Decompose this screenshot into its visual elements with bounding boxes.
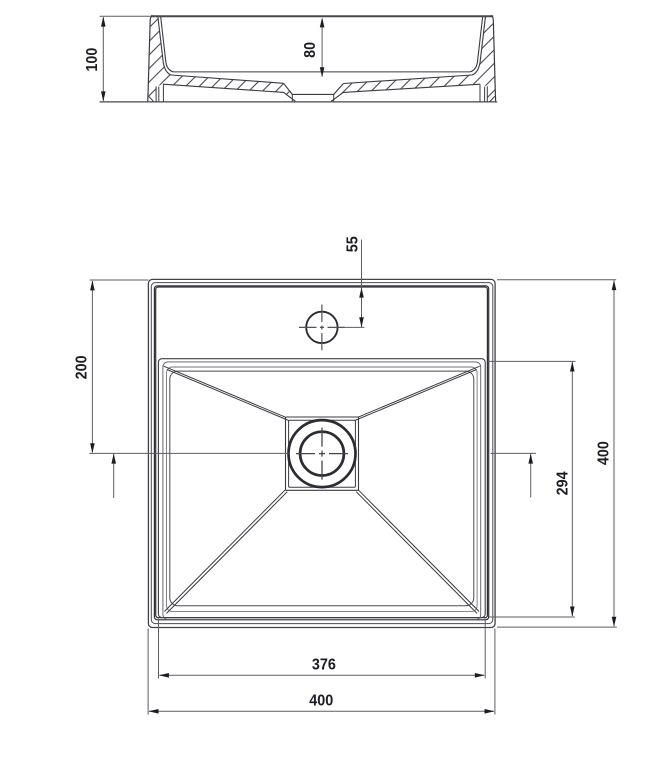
svg-text:80: 80 <box>302 42 319 58</box>
svg-text:55: 55 <box>344 236 361 252</box>
svg-text:376: 376 <box>312 657 336 674</box>
svg-text:400: 400 <box>596 441 613 465</box>
svg-text:400: 400 <box>309 692 333 709</box>
svg-text:100: 100 <box>84 48 101 72</box>
svg-text:200: 200 <box>73 355 90 379</box>
svg-text:294: 294 <box>554 471 571 495</box>
